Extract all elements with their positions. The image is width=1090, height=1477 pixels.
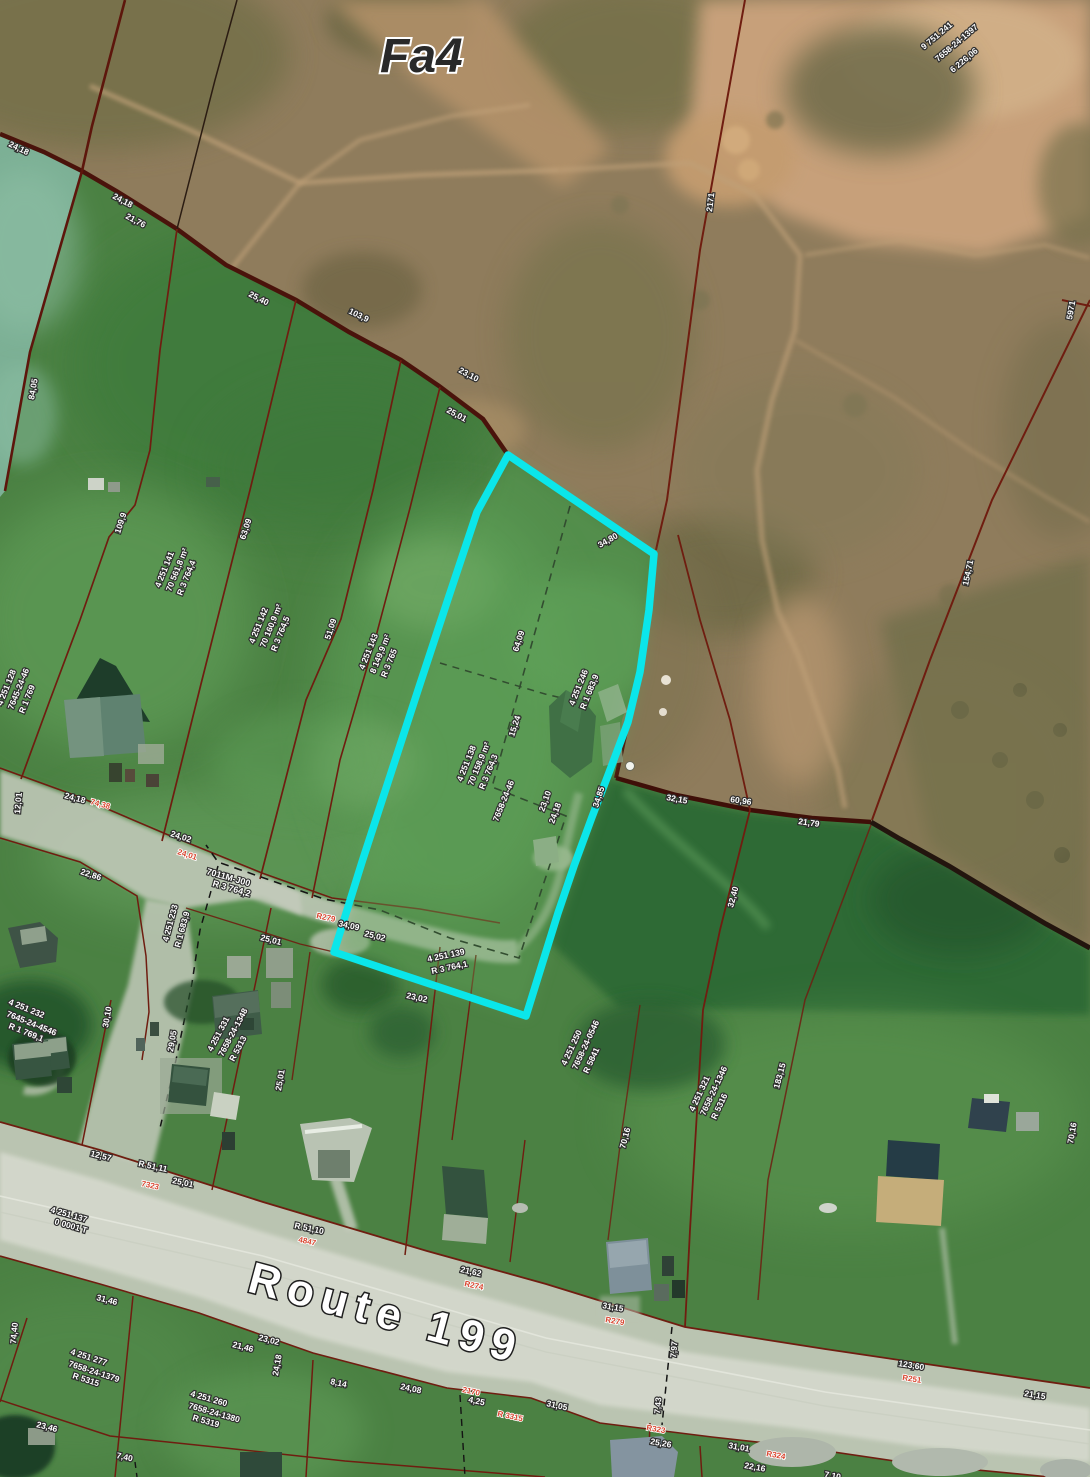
svg-text:74,40: 74,40 <box>8 1322 20 1344</box>
svg-text:7,97: 7,97 <box>668 1341 679 1359</box>
svg-text:Fa4: Fa4 <box>380 30 463 83</box>
svg-text:12,01: 12,01 <box>12 792 24 814</box>
svg-text:7,43: 7,43 <box>652 1397 663 1415</box>
